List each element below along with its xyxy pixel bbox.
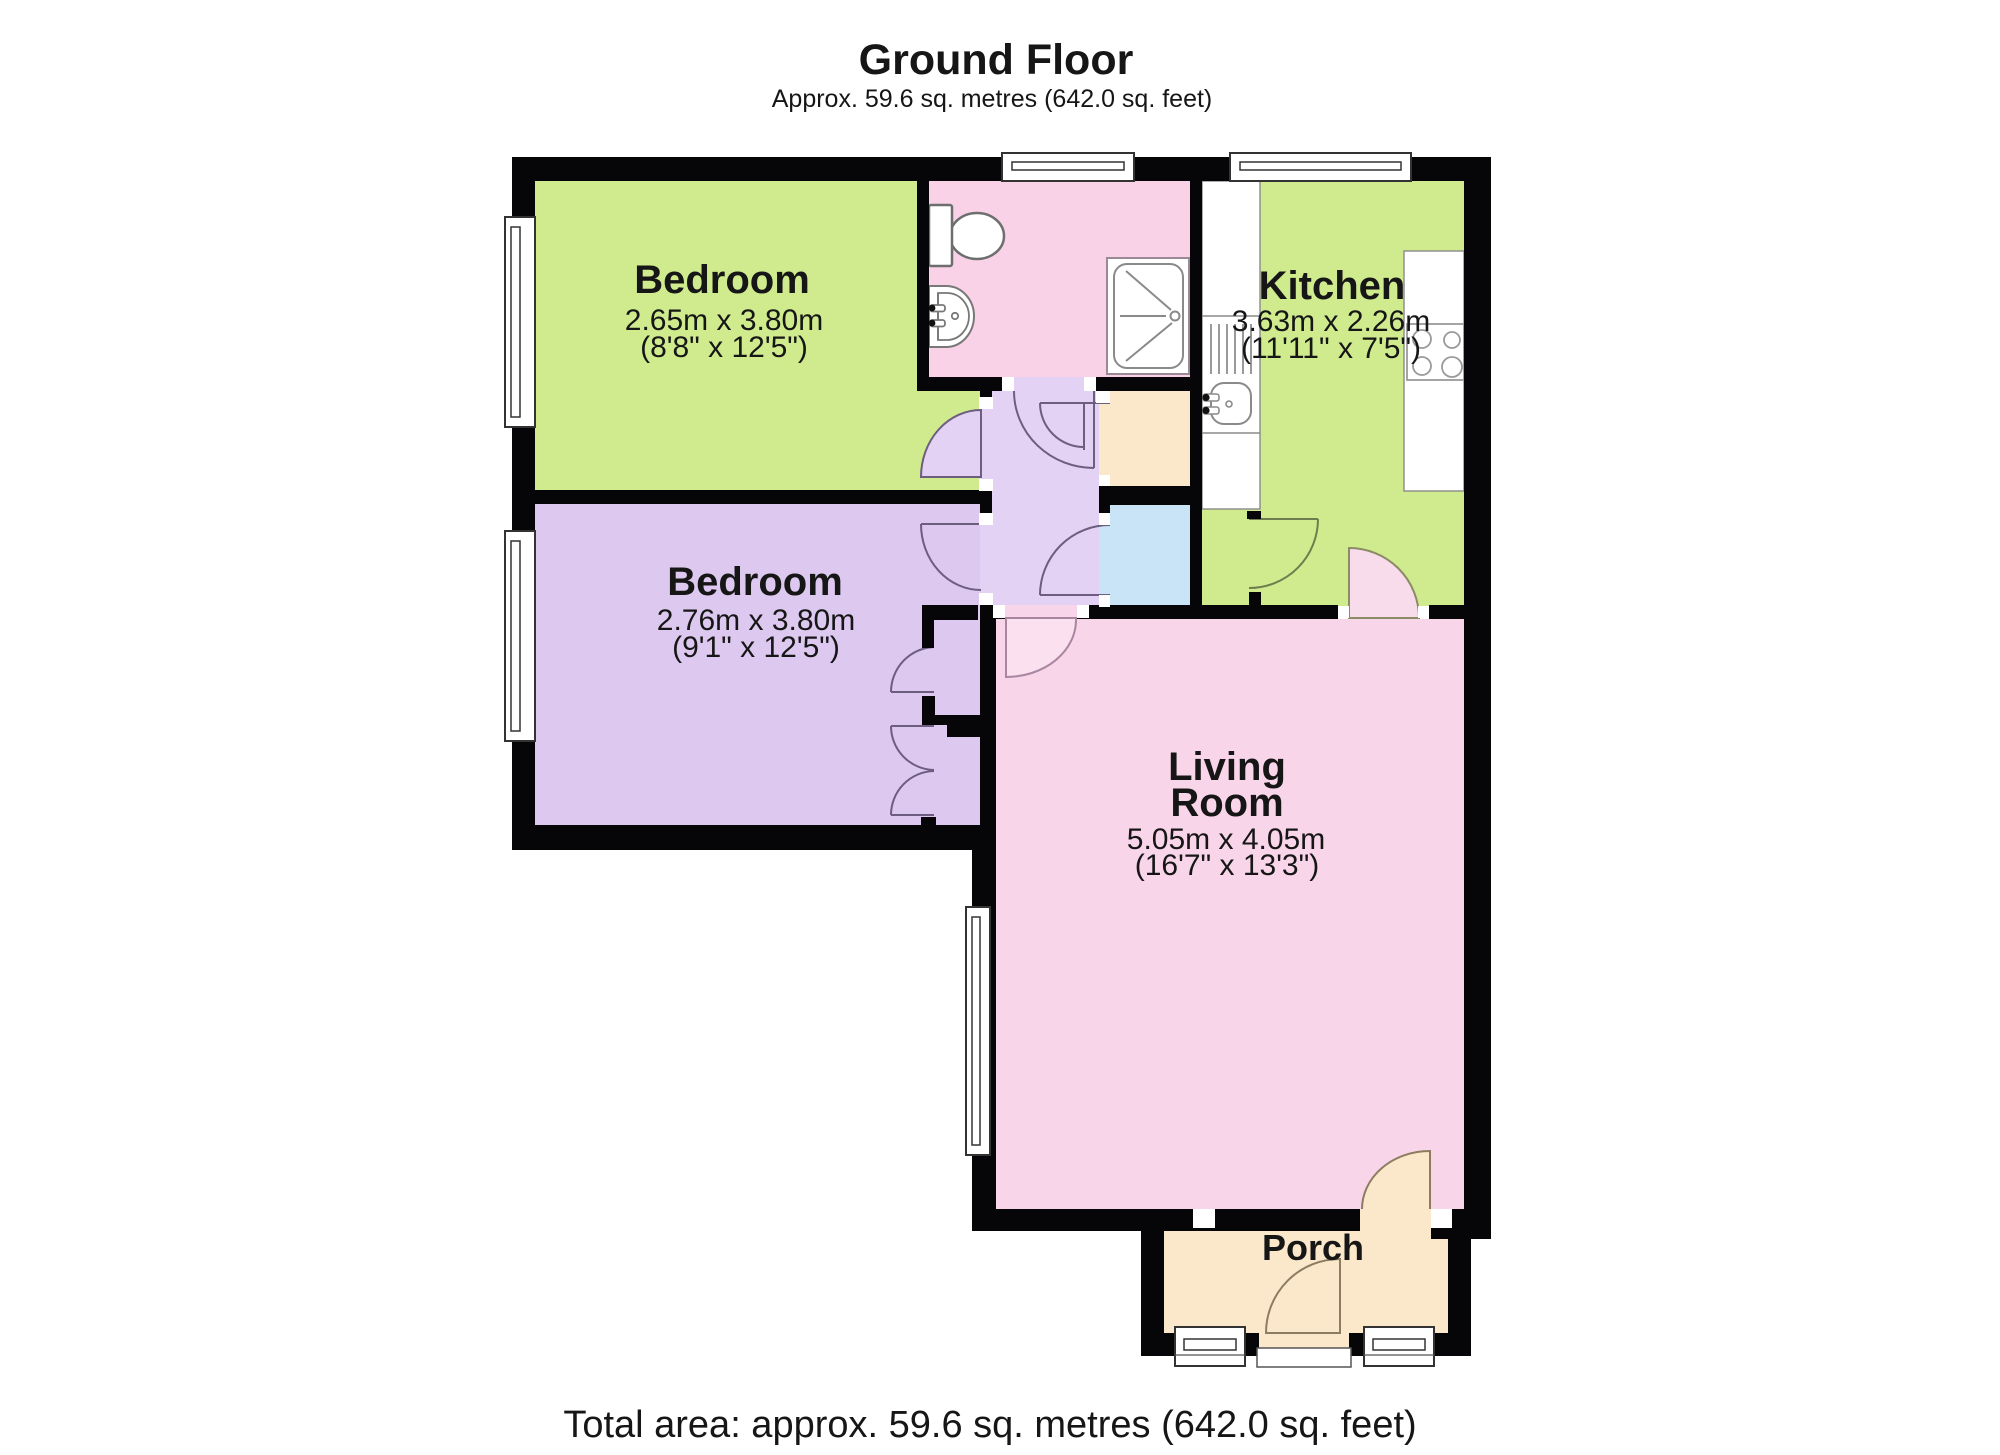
svg-text:Bedroom: Bedroom [667,560,843,604]
svg-text:(11'11" x 7'5"): (11'11" x 7'5") [1241,332,1421,365]
svg-text:Ground Floor: Ground Floor [859,36,1134,84]
svg-text:(16'7" x 13'3"): (16'7" x 13'3") [1135,849,1320,882]
svg-text:Bedroom: Bedroom [634,258,810,302]
svg-text:Kitchen: Kitchen [1259,264,1406,308]
svg-text:Porch: Porch [1262,1227,1364,1268]
svg-text:(8'8" x 12'5"): (8'8" x 12'5") [640,331,808,364]
svg-text:Approx. 59.6 sq. metres (642.0: Approx. 59.6 sq. metres (642.0 sq. feet) [772,85,1213,113]
svg-text:Room: Room [1170,781,1283,825]
svg-text:Total area: approx. 59.6 sq. m: Total area: approx. 59.6 sq. metres (642… [563,1404,1416,1446]
svg-text:(9'1" x 12'5"): (9'1" x 12'5") [672,631,840,664]
